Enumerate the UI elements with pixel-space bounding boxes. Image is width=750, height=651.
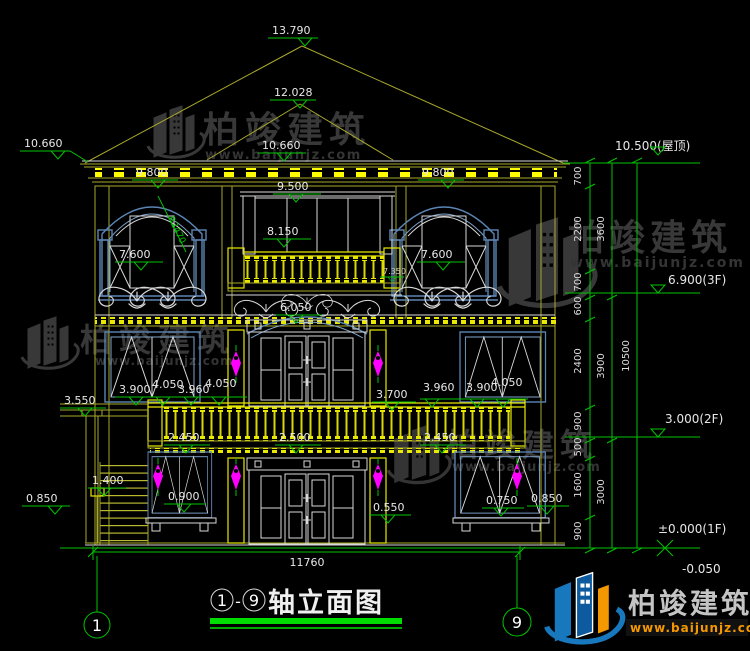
- dim-label: 3900: [596, 353, 607, 378]
- level-label: 9.800: [136, 166, 168, 179]
- dim-label: 3600: [596, 216, 607, 241]
- dim-label: 700: [573, 272, 584, 291]
- level-label: 6.050: [280, 301, 312, 314]
- elevation-label-3f: 6.900(3F): [668, 273, 726, 287]
- level-label: 9.500: [277, 180, 309, 193]
- level-label: 2.450: [424, 431, 456, 444]
- logo-brand: 柏竣建筑: [628, 587, 750, 620]
- level-label: 10.660: [24, 137, 63, 150]
- level-label: 3.700: [376, 388, 408, 401]
- title-underline-thin: [210, 627, 402, 629]
- level-label: 7.350: [383, 267, 406, 276]
- level-label: 0.900: [168, 490, 200, 503]
- level-label: 10.660: [262, 139, 301, 152]
- baijun-logo: 柏竣建筑 www.baijunjz.com: [547, 573, 750, 642]
- elevation-label-1f: ±0.000(1F): [658, 522, 726, 536]
- right-dimension-chain: 700 2200 700 600 2400 900 500 1600 900 3…: [563, 139, 726, 576]
- elevation-svg: 柏竣建筑 www.baijunjz.com 柏竣建筑 www.baijunjz.…: [0, 0, 750, 651]
- title-text: 轴立面图: [268, 587, 384, 619]
- level-label: 12.028: [274, 86, 313, 99]
- dim-label: 900: [573, 411, 584, 430]
- level-label: 0.550: [373, 501, 405, 514]
- level-label: 2.450: [168, 431, 200, 444]
- level-label: 1.400: [92, 474, 124, 487]
- level-label: 3.550: [64, 394, 96, 407]
- axis-bubble-right: 9: [503, 556, 531, 636]
- level-label: 0.850: [531, 492, 563, 505]
- level-label: 8.150: [267, 225, 299, 238]
- watermark-brand: 柏竣建筑: [568, 218, 732, 259]
- dim-label: 3000: [596, 479, 607, 504]
- dim-label: 500: [573, 437, 584, 456]
- facade-ornament: [373, 458, 383, 496]
- level-label: 4.050: [205, 377, 237, 390]
- elevation-label-minus: -0.050: [682, 562, 721, 576]
- title-dash: -: [235, 592, 241, 611]
- watermark-url: www.baijunjz.com: [570, 255, 745, 271]
- level-label: 2.500: [279, 431, 311, 444]
- elevation-label-2f: 3.000(2F): [665, 412, 723, 426]
- arched-window-left: [98, 207, 206, 300]
- elevation-label-roof: 10.500(屋顶): [615, 139, 690, 153]
- watermark-logo-icon: [22, 317, 78, 368]
- dim-label: 2400: [573, 348, 584, 373]
- level-label: 9.800: [422, 166, 454, 179]
- axis-number: 9: [512, 613, 522, 632]
- radius-annotation: R2470: [158, 196, 187, 252]
- level-label: 3.900: [119, 383, 151, 396]
- window-sills: [146, 518, 549, 531]
- baijun-logo-icon: [547, 573, 623, 642]
- level-label: 3.960: [423, 381, 455, 394]
- third-floor-center-window: [240, 192, 395, 254]
- level-label: 7.600: [119, 248, 151, 261]
- logo-url: www.baijunjz.com: [630, 621, 750, 635]
- title-bubble-left: 1: [217, 591, 227, 610]
- overall-dim: 11760: [290, 556, 325, 569]
- dim-label: 900: [573, 521, 584, 540]
- watermark-right-middle: 柏竣建筑 www.baijunjz.com: [499, 218, 745, 306]
- dim-label: 2200: [573, 216, 584, 241]
- dim-label: 1600: [573, 472, 584, 497]
- dim-label: 700: [573, 166, 584, 185]
- level-label: 0.750: [486, 494, 518, 507]
- axis-number: 1: [92, 616, 102, 635]
- title-underline: [210, 618, 402, 624]
- level-label: 7.600: [421, 248, 453, 261]
- radius-label: R2470: [165, 215, 187, 246]
- title-bubble-right: 9: [249, 591, 259, 610]
- facade-ornament: [153, 458, 163, 496]
- cad-elevation-drawing: 柏竣建筑 www.baijunjz.com 柏竣建筑 www.baijunjz.…: [0, 0, 750, 651]
- facade-ornament: [231, 458, 241, 496]
- drawing-title: 1 - 9 轴立面图: [210, 587, 402, 629]
- level-label: 0.850: [26, 492, 58, 505]
- axis-bubble-left: 1: [84, 556, 110, 638]
- third-floor-balcony: [226, 248, 402, 295]
- level-label: 13.790: [272, 24, 311, 37]
- bottom-dimension: 11760: [60, 546, 700, 569]
- watermark-top-center: 柏竣建筑 www.baijunjz.com: [148, 106, 371, 163]
- dim-label: 10500: [621, 340, 632, 372]
- second-floor-door: [247, 320, 367, 406]
- level-label: 4.050: [491, 376, 523, 389]
- watermark-left-middle: 柏竣建筑 www.baijunjz.com: [22, 317, 236, 368]
- facade-ornament: [373, 345, 383, 383]
- first-floor-door: [247, 458, 367, 544]
- dim-label: 600: [573, 296, 584, 315]
